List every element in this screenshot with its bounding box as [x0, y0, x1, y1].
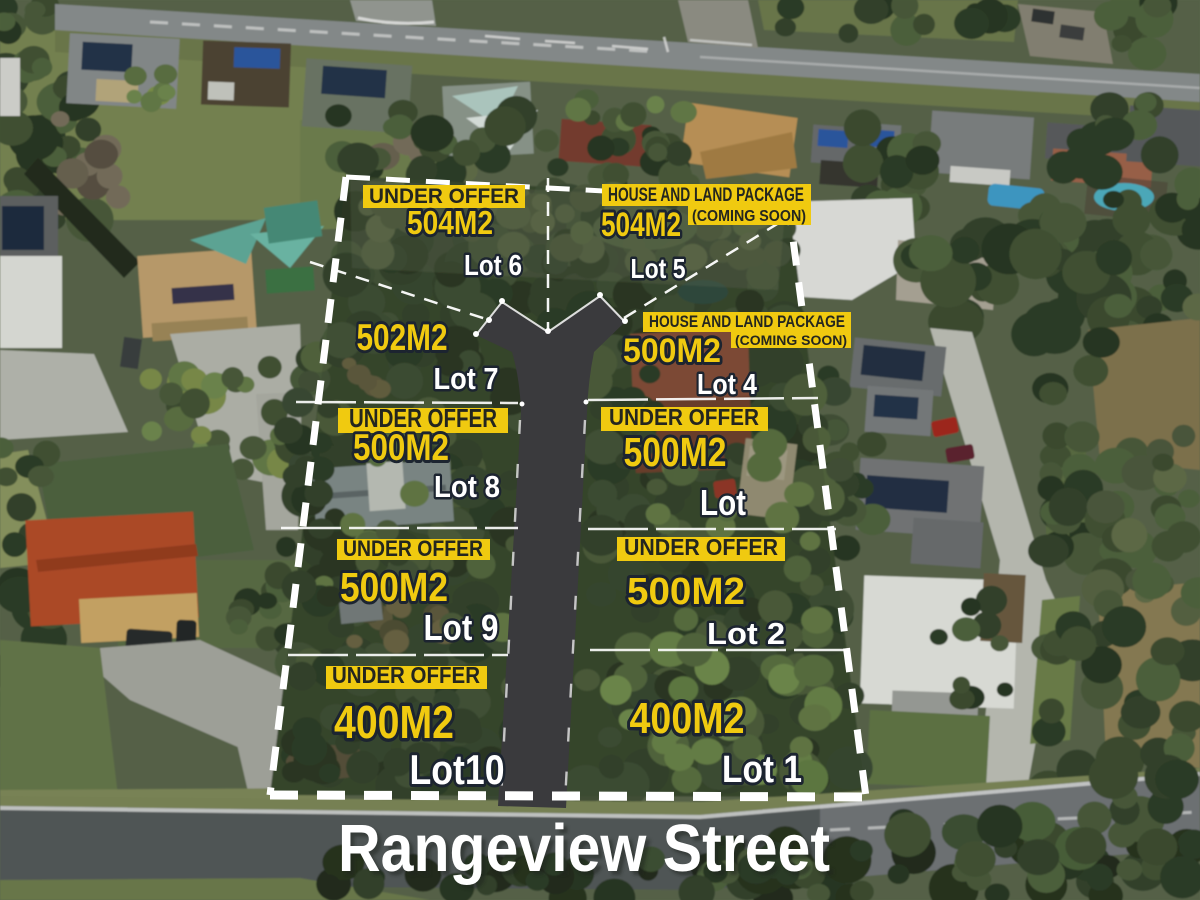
svg-text:(COMING SOON): (COMING SOON): [735, 332, 847, 348]
svg-text:500M2: 500M2: [627, 571, 745, 613]
svg-text:Lot 7: Lot 7: [434, 361, 499, 396]
svg-text:500M2: 500M2: [623, 332, 721, 370]
svg-text:500M2: 500M2: [353, 427, 449, 468]
svg-text:UNDER OFFER: UNDER OFFER: [343, 536, 483, 561]
svg-text:HOUSE AND LAND PACKAGE: HOUSE AND LAND PACKAGE: [608, 185, 804, 206]
svg-text:502M2: 502M2: [357, 317, 448, 358]
svg-text:Lot 1: Lot 1: [722, 749, 802, 791]
svg-text:504M2: 504M2: [407, 204, 493, 241]
svg-text:Lot: Lot: [700, 482, 746, 523]
svg-text:(COMING SOON): (COMING SOON): [692, 208, 806, 225]
svg-text:504M2: 504M2: [601, 206, 681, 244]
svg-text:Lot 9: Lot 9: [424, 607, 499, 648]
svg-text:UNDER OFFER: UNDER OFFER: [609, 404, 759, 430]
svg-text:Lot 8: Lot 8: [434, 469, 500, 504]
svg-text:HOUSE AND LAND PACKAGE: HOUSE AND LAND PACKAGE: [649, 312, 845, 331]
svg-text:Rangeview Street: Rangeview Street: [338, 811, 830, 886]
svg-text:UNDER OFFER: UNDER OFFER: [332, 662, 480, 688]
svg-text:UNDER OFFER: UNDER OFFER: [624, 534, 778, 560]
svg-text:400M2: 400M2: [334, 696, 454, 748]
svg-text:Lot 5: Lot 5: [631, 253, 686, 284]
svg-text:500M2: 500M2: [624, 429, 727, 475]
svg-text:500M2: 500M2: [340, 564, 448, 610]
svg-text:Lot 6: Lot 6: [464, 250, 522, 282]
svg-text:400M2: 400M2: [630, 694, 745, 743]
svg-text:Lot 4: Lot 4: [697, 369, 757, 401]
svg-text:Lot 2: Lot 2: [707, 616, 785, 651]
svg-text:Lot10: Lot10: [410, 746, 505, 793]
